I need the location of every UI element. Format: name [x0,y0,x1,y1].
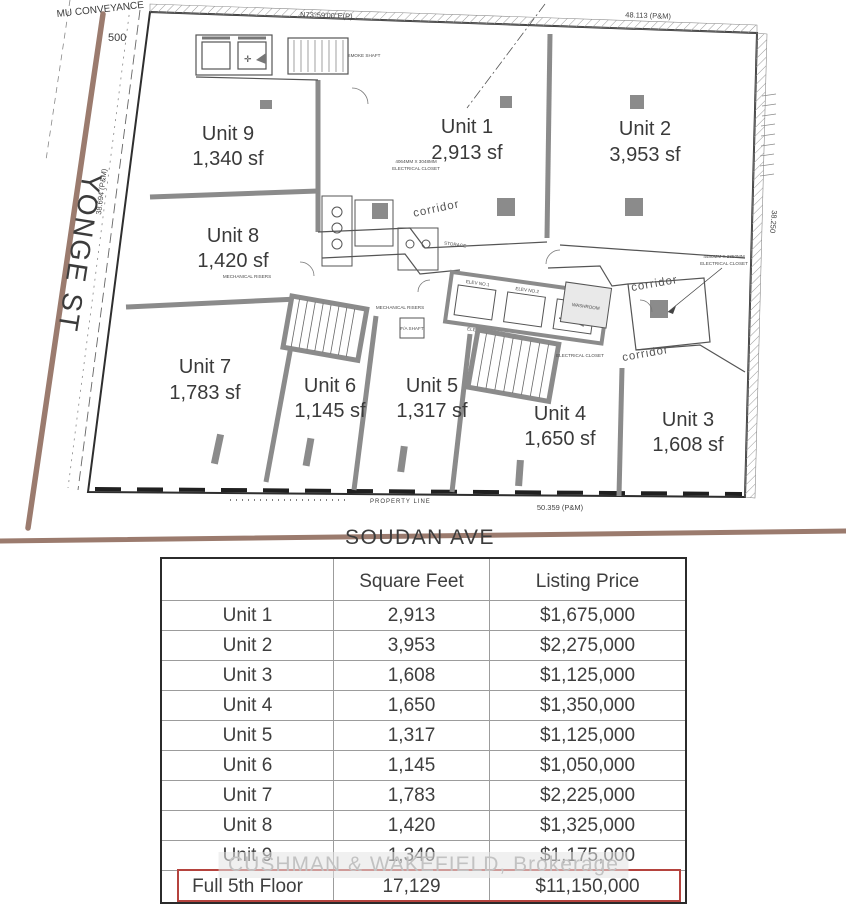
bearing-top: N73°59'00"E(P) [300,10,353,21]
svg-text:4480MM X 2850MM: 4480MM X 2850MM [703,254,745,259]
svg-text:3,953 sf: 3,953 sf [609,144,681,166]
row-unit-6-price: $1,050,000 [489,751,685,781]
svg-text:Unit 6: Unit 6 [304,375,356,397]
row-unit-7-sqft: 1,783 [333,781,489,811]
floor-plan: YONGE ST MU CONVEYANCE 500 ✛ [0,0,846,556]
header-square-feet: Square Feet [333,559,489,601]
row-unit-9-price: $1,175,000 [489,841,685,871]
svg-text:1,650 sf: 1,650 sf [524,428,596,450]
svg-text:Unit 5: Unit 5 [406,375,458,397]
row-unit-1-price: $1,675,000 [489,601,685,631]
row-unit-6-name: Unit 6 [162,751,333,781]
svg-text:1,783 sf: 1,783 sf [169,382,241,404]
soudan-avenue: SOUDAN AVE [0,526,846,549]
mech-risers-label-2: MECHANICAL RISERS [376,305,424,310]
row-unit-5-price: $1,125,000 [489,721,685,751]
row-full-floor-price: $11,150,000 [489,871,685,902]
pricing-table: Square Feet Listing Price Unit 1 2,913 $… [160,557,687,904]
svg-text:2,913 sf: 2,913 sf [431,142,503,164]
svg-text:Unit 8: Unit 8 [207,225,259,247]
dim-bottom: 50.359 (P&M) [537,503,584,512]
svg-text:Unit 9: Unit 9 [202,123,254,145]
row-unit-1-name: Unit 1 [162,601,333,631]
mech-risers-label-1: MECHANICAL RISERS [223,274,271,279]
row-unit-7-name: Unit 7 [162,781,333,811]
svg-text:1,420 sf: 1,420 sf [197,250,269,272]
stair-2 [283,296,367,360]
electrical-closet-column [650,300,668,318]
svg-text:ELECTRICAL CLOSET: ELECTRICAL CLOSET [392,166,440,171]
row-unit-6-sqft: 1,145 [333,751,489,781]
row-unit-7-price: $2,225,000 [489,781,685,811]
svg-text:Unit 1: Unit 1 [441,116,493,138]
row-unit-2-name: Unit 2 [162,631,333,661]
svg-text:Unit 2: Unit 2 [619,118,671,140]
building-outline [88,12,757,497]
row-unit-9-sqft: 1,340 [333,841,489,871]
row-unit-2-sqft: 3,953 [333,631,489,661]
row-unit-8-sqft: 1,420 [333,811,489,841]
row-unit-3-name: Unit 3 [162,661,333,691]
row-unit-3-sqft: 1,608 [333,661,489,691]
listing-flyer: YONGE ST MU CONVEYANCE 500 ✛ [0,0,846,918]
row-unit-3-price: $1,125,000 [489,661,685,691]
accessibility-icon: ✛ [244,54,252,64]
row-unit-8-name: Unit 8 [162,811,333,841]
column-marker [372,203,388,219]
pricing-table-grid: Square Feet Listing Price Unit 1 2,913 $… [162,559,685,902]
conveyance-number: 500 [108,32,126,44]
washroom: WASHROOM [560,282,611,328]
row-unit-4-sqft: 1,650 [333,691,489,721]
svg-text:Unit 4: Unit 4 [534,403,586,425]
fa-shaft-label: F/A SHAFT [400,326,423,331]
row-unit-4-name: Unit 4 [162,691,333,721]
row-unit-5-name: Unit 5 [162,721,333,751]
row-unit-8-price: $1,325,000 [489,811,685,841]
svg-text:1,340 sf: 1,340 sf [192,148,264,170]
svg-text:Unit 7: Unit 7 [179,356,231,378]
row-full-floor-name: Full 5th Floor [162,871,333,902]
smoke-shaft-label: SMOKE SHAFT [348,53,381,58]
svg-text:ELECTRICAL CLOSET: ELECTRICAL CLOSET [700,261,748,266]
header-unit [162,559,333,601]
svg-text:1,317 sf: 1,317 sf [396,400,468,422]
row-unit-9-name: Unit 9 [162,841,333,871]
row-unit-1-sqft: 2,913 [333,601,489,631]
svg-text:1,608 sf: 1,608 sf [652,434,724,456]
header-listing-price: Listing Price [489,559,685,601]
property-line-note: PROPERTY LINE [230,499,431,505]
svg-text:Unit 3: Unit 3 [662,409,714,431]
electrical-closet-label-3: ELECTRICAL CLOSET [556,353,604,358]
dim-top: 48.113 (P&M) [625,10,672,21]
dim-right: 38.250 [768,210,779,234]
property-line-label: PROPERTY LINE [370,499,431,505]
soudan-avenue-label: SOUDAN AVE [345,526,495,549]
svg-text:1,145 sf: 1,145 sf [294,400,366,422]
row-unit-5-sqft: 1,317 [333,721,489,751]
row-unit-2-price: $2,275,000 [489,631,685,661]
row-unit-4-price: $1,350,000 [489,691,685,721]
stair-3 [468,330,559,401]
row-full-floor-sqft: 17,129 [333,871,489,902]
